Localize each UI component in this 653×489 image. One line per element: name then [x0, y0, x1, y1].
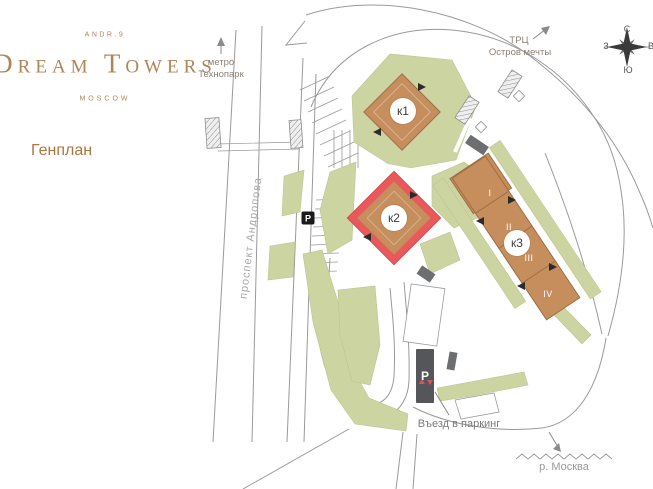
building-k1-badge[interactable]: к1 — [390, 98, 416, 124]
site-plan-page: ANDR.9 Dream Towers MOSCOW Генплан метро… — [0, 0, 653, 489]
brand-logo: Dream Towers — [0, 49, 217, 80]
river-label: р. Москва — [539, 461, 589, 473]
mall-label-line2: Остров мечты — [489, 47, 551, 59]
metro-label-line2: Технопарк — [198, 69, 244, 81]
metro-label-line1: метро — [208, 57, 234, 69]
k3-section-4-label: IV — [543, 289, 553, 299]
compass-north-label: С — [624, 24, 631, 34]
parking-entrance-label: Въезд в паркинг — [418, 418, 501, 430]
compass-south-label: Ю — [623, 65, 632, 75]
mall-label-line1: ТРЦ — [509, 35, 528, 47]
river-line — [516, 454, 612, 459]
compass-west-label: З — [603, 41, 608, 51]
building-k2-badge[interactable]: к2 — [381, 205, 407, 231]
surface-parking-icon: P — [302, 212, 315, 225]
k3-section-3-label: III — [524, 253, 533, 263]
brand-city: MOSCOW — [79, 96, 130, 103]
parking-garage-icon: P — [421, 369, 429, 383]
compass-east-label: В — [648, 41, 653, 51]
brand-tagline: ANDR.9 — [85, 32, 126, 39]
page-title: Генплан — [31, 142, 92, 160]
k3-section-2-label: II — [506, 222, 512, 232]
k3-section-1-label: I — [488, 188, 491, 198]
